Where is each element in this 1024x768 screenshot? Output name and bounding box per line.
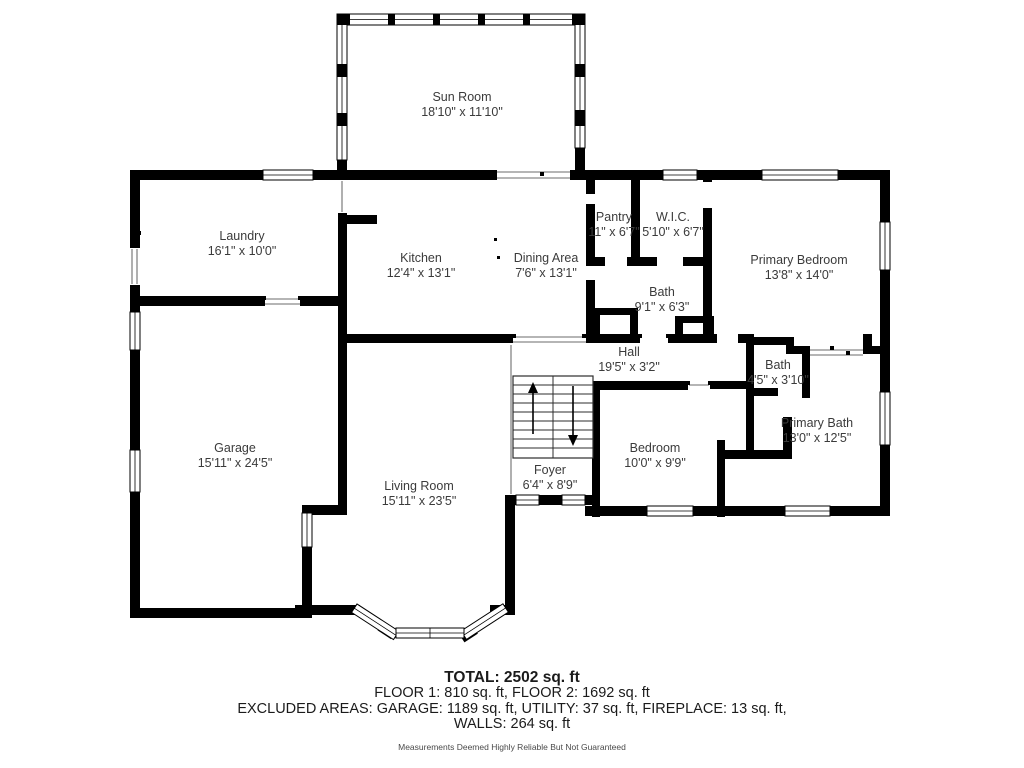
window (130, 312, 140, 350)
room-label-laundry: Laundry (219, 229, 265, 243)
room-label-bath-small: Bath (765, 358, 791, 372)
sun-room-window-walls (337, 14, 585, 160)
wall (717, 440, 725, 517)
door-gap (605, 257, 627, 266)
wall (300, 296, 347, 306)
room-label-kitchen: Kitchen (400, 251, 442, 265)
wall (723, 450, 792, 459)
window (516, 495, 539, 505)
window (663, 170, 697, 180)
bay-window (352, 604, 399, 640)
wall (338, 213, 347, 514)
bath-fixture-wall (592, 308, 638, 315)
room-label-dining-area: Dining Area (514, 251, 579, 265)
window (263, 170, 313, 180)
room-dims-primary-bath: 13'0" x 12'5" (783, 431, 852, 445)
room-label-primary-bath: Primary Bath (781, 416, 853, 430)
room-dims-pantry: 11" x 6'7" (588, 225, 639, 239)
window (130, 450, 140, 492)
area-summary: TOTAL: 2502 sq. ft FLOOR 1: 810 sq. ft, … (0, 670, 1024, 752)
room-dims-wic: 5'10" x 6'7" (642, 225, 704, 239)
wall (347, 215, 377, 224)
room-dims-living-room: 15'11" x 23'5" (382, 494, 457, 508)
room-dims-laundry: 16'1" x 10'0" (208, 244, 277, 258)
wall (505, 495, 515, 610)
excluded-areas: EXCLUDED AREAS: GARAGE: 1189 sq. ft, UTI… (0, 702, 1024, 718)
bay-window (396, 628, 464, 638)
room-label-garage: Garage (214, 441, 256, 455)
room-dims-dining-area: 7'6" x 13'1" (515, 266, 577, 280)
wall (802, 346, 810, 398)
staircase (513, 376, 593, 458)
wall (631, 178, 640, 266)
bay-window (461, 604, 508, 640)
window (647, 506, 693, 516)
bath-fixture-wall (675, 316, 714, 323)
room-dims-foyer: 6'4" x 8'9" (523, 478, 578, 492)
window (880, 392, 890, 445)
room-dims-garage: 15'11" x 24'5" (198, 456, 273, 470)
window (302, 513, 312, 547)
room-label-foyer: Foyer (534, 463, 566, 477)
wall (746, 337, 793, 345)
wall (863, 334, 872, 354)
window (785, 506, 830, 516)
room-label-pantry: Pantry (596, 210, 633, 224)
wall (130, 608, 312, 618)
floor-plan-page: Sun Room 18'10" x 11'10" Laundry 16'1" x… (0, 0, 1024, 768)
disclaimer: Measurements Deemed Highly Reliable But … (0, 742, 1024, 752)
window (562, 495, 585, 505)
room-label-living-room: Living Room (384, 479, 453, 493)
room-label-primary-bedroom: Primary Bedroom (750, 253, 847, 267)
door-gap (657, 257, 683, 266)
room-dims-bath: 9'1" x 6'3" (635, 300, 690, 314)
floor-areas: FLOOR 1: 810 sq. ft, FLOOR 2: 1692 sq. f… (0, 686, 1024, 702)
door-gap (688, 381, 710, 390)
opening-ticks (136, 172, 850, 385)
total-area: TOTAL: 2502 sq. ft (0, 670, 1024, 686)
wall (752, 388, 778, 396)
room-label-bath: Bath (649, 285, 675, 299)
wall (586, 257, 712, 266)
opening (497, 170, 570, 180)
room-dims-kitchen: 12'4" x 13'1" (387, 266, 456, 280)
room-dims-bedroom: 10'0" x 9'9" (624, 456, 686, 470)
door-gap (640, 334, 668, 343)
room-label-bedroom: Bedroom (630, 441, 681, 455)
wall (585, 506, 890, 516)
room-dims-primary-bedroom: 13'8" x 14'0" (765, 268, 834, 282)
floor-plan-drawing: Sun Room 18'10" x 11'10" Laundry 16'1" x… (0, 0, 1024, 768)
wall (347, 334, 513, 343)
room-label-sun-room: Sun Room (432, 90, 491, 104)
wall (710, 381, 748, 389)
room-dims-hall: 19'5" x 3'2" (598, 360, 660, 374)
room-label-wic: W.I.C. (656, 210, 690, 224)
room-dims-bath-small: 4'5" x 3'10" (747, 373, 809, 387)
wall (130, 170, 140, 618)
wall (586, 180, 595, 194)
window (762, 170, 838, 180)
opening (130, 248, 140, 285)
door-gap (703, 182, 712, 208)
wall (575, 148, 585, 172)
wall (295, 605, 360, 615)
wall (130, 296, 265, 306)
wall (592, 381, 688, 390)
room-label-hall: Hall (618, 345, 640, 359)
wall (337, 160, 347, 172)
room-dims-sun-room: 18'10" x 11'10" (421, 105, 503, 119)
window (880, 222, 890, 270)
walls-area: WALLS: 264 sq. ft (0, 717, 1024, 733)
